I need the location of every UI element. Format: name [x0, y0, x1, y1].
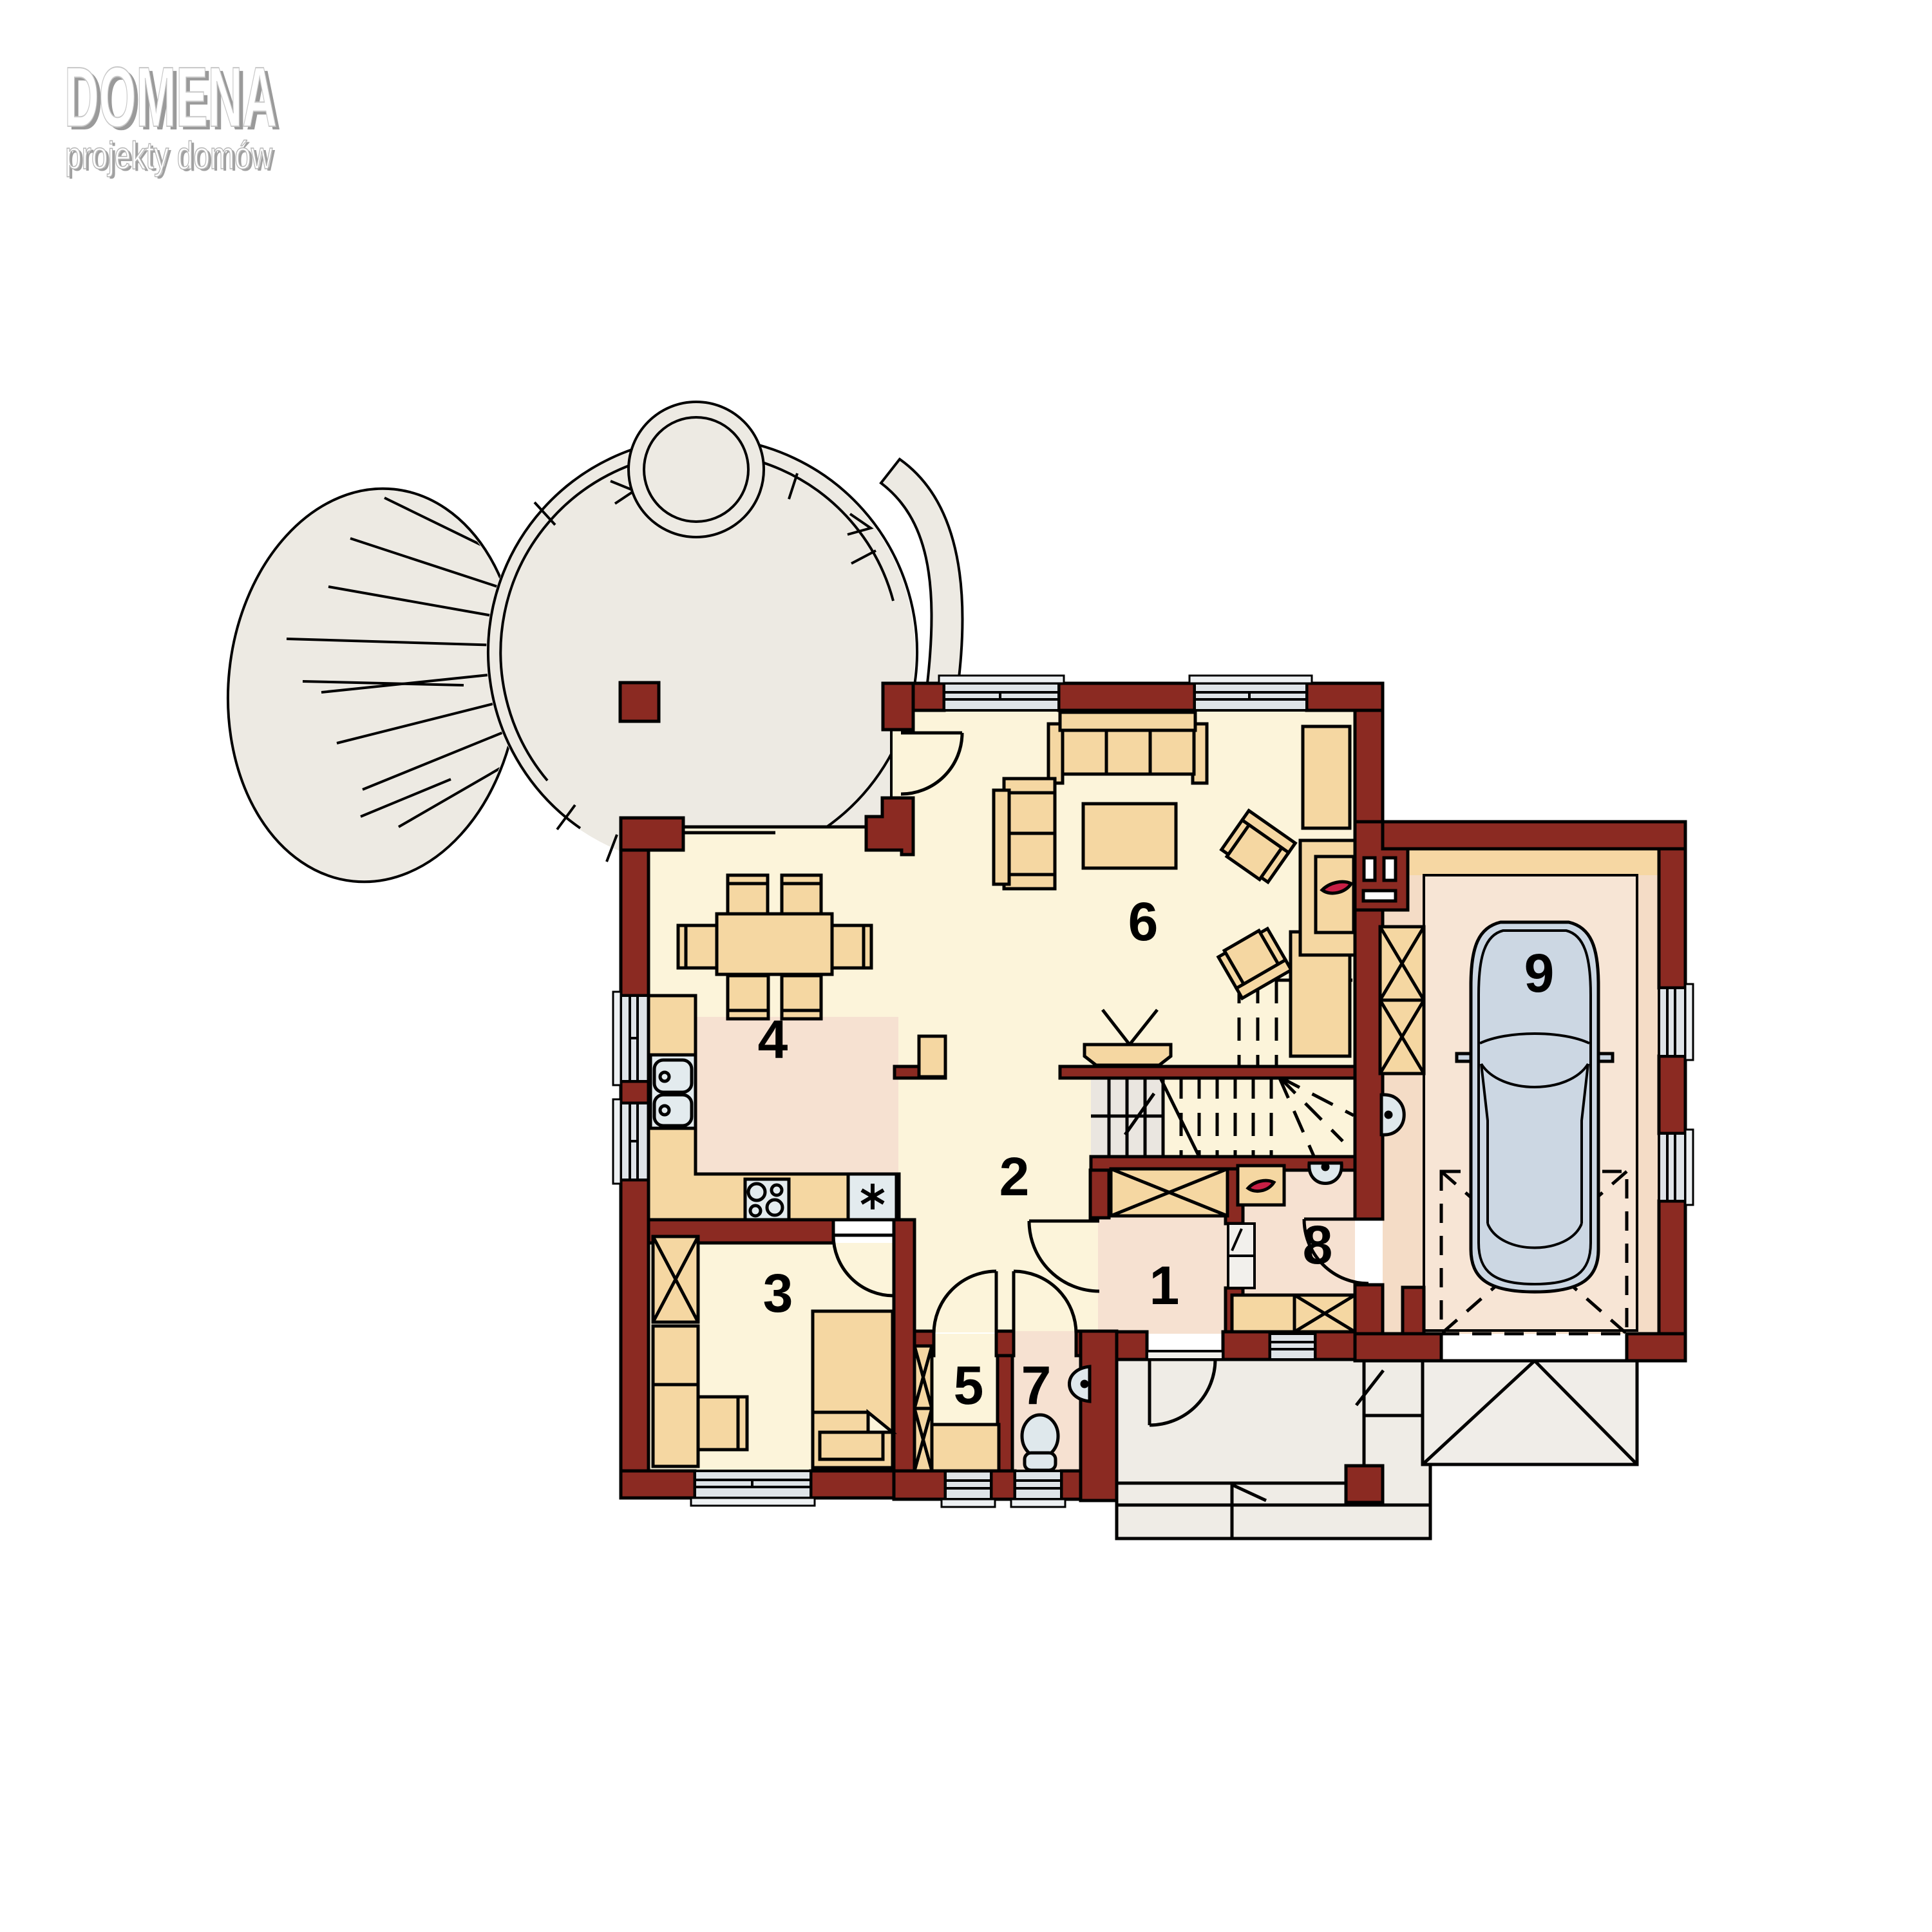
svg-text:2: 2 — [999, 1146, 1030, 1207]
svg-text:projekty domów: projekty domów — [65, 134, 273, 177]
svg-text:4: 4 — [758, 1009, 788, 1070]
svg-text:8: 8 — [1303, 1215, 1333, 1275]
svg-text:5: 5 — [954, 1355, 984, 1416]
svg-text:6: 6 — [1128, 891, 1159, 952]
svg-text:1: 1 — [1150, 1255, 1180, 1316]
svg-text:9: 9 — [1524, 943, 1555, 1003]
svg-text:7: 7 — [1021, 1355, 1052, 1416]
svg-text:DOMENA: DOMENA — [64, 50, 277, 144]
svg-text:3: 3 — [763, 1263, 793, 1323]
